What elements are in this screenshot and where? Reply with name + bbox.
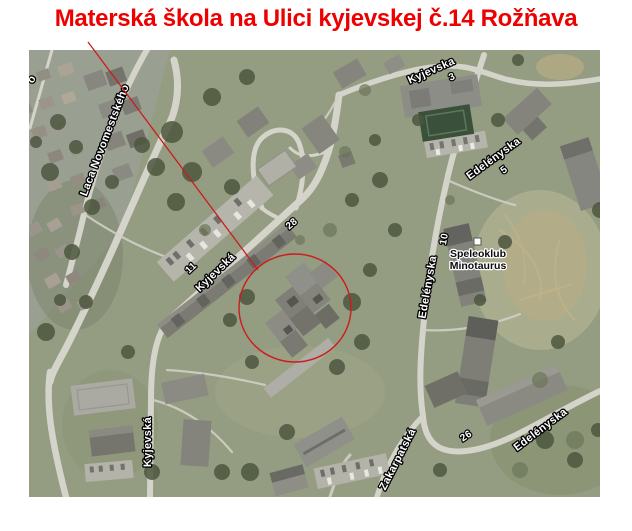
- poi-label-line1: Speleoklub: [450, 248, 506, 260]
- screenshot-root: Materská škola na Ulici kyjevskej č.14 R…: [0, 0, 632, 531]
- house-number-10: 10: [438, 232, 451, 246]
- annotated-map: Laca Novomestského Kyjevská 11 28 Kyjevs…: [0, 0, 632, 531]
- poi-marker-icon: [474, 238, 481, 245]
- street-label-kyjevska-bottom: Kyjevská: [142, 416, 154, 467]
- poi-label-line2: Minotaurus: [450, 260, 507, 272]
- satellite-map: Laca Novomestského Kyjevská 11 28 Kyjevs…: [8, 48, 630, 497]
